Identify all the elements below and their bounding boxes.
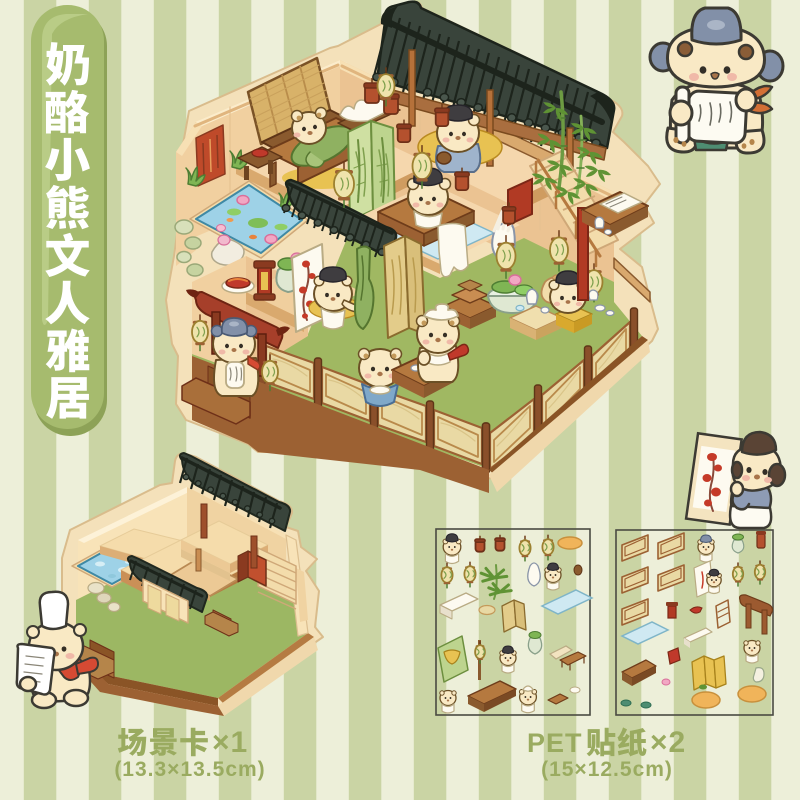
svg-text:(15×12.5cm): (15×12.5cm)	[541, 758, 673, 781]
svg-text:×2: ×2	[650, 726, 686, 759]
svg-text:(13.3×13.5cm): (13.3×13.5cm)	[114, 758, 265, 781]
svg-text:PET: PET	[527, 728, 583, 758]
svg-text:×1: ×1	[212, 726, 248, 759]
